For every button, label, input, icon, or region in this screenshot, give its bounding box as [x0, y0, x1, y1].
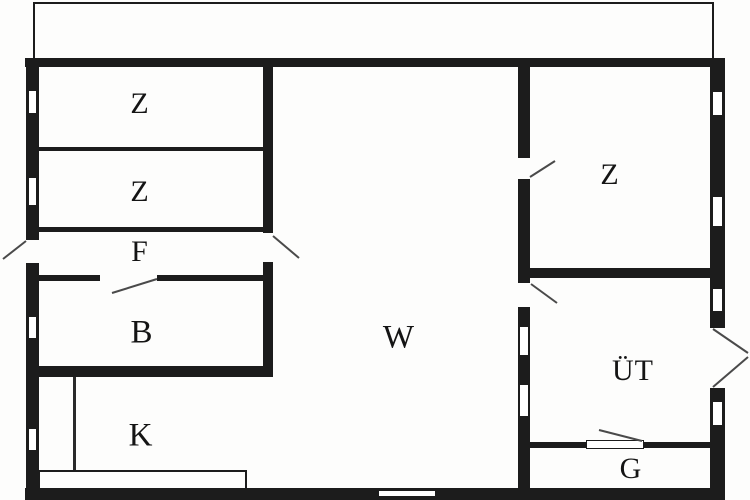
b-door-swing-line	[112, 279, 157, 293]
room-label-w: W	[383, 322, 415, 355]
wall-w-right-vertical	[518, 58, 530, 500]
floor-plan: Z Z F B K W Z ÜT G	[0, 0, 750, 500]
wall-g-top-left-segment	[530, 442, 588, 448]
window-left-1	[27, 89, 38, 115]
ut-door-opening	[518, 283, 530, 307]
room-label-ut: ÜT	[612, 356, 654, 386]
wall-f-b-left-segment	[39, 275, 100, 281]
wall-exterior-top	[25, 58, 725, 67]
wall-g-top-right-segment	[642, 442, 710, 448]
window-w-ut-2	[518, 383, 530, 418]
window-left-2	[27, 176, 38, 207]
window-right-3	[711, 287, 724, 313]
wall-z1-z2	[39, 147, 263, 151]
room-label-z1: Z	[130, 89, 149, 119]
room-label-f: F	[131, 237, 149, 267]
room-label-z2: Z	[130, 177, 149, 207]
room-label-k: K	[129, 420, 154, 453]
ut-door-swing-line	[531, 284, 557, 303]
f-to-w-door-opening	[263, 233, 273, 262]
wall-left-rooms-vertical	[263, 58, 273, 377]
window-w-ut-1	[518, 325, 530, 357]
wall-b-bottom	[39, 366, 273, 377]
kitchen-divider-line	[73, 377, 76, 470]
g-door-threshold	[586, 440, 644, 449]
window-left-3	[27, 315, 38, 340]
entrance-door-swing-line	[3, 241, 26, 259]
entrance-door-opening	[26, 240, 39, 263]
terrace-outline	[33, 2, 714, 60]
z3-door-swing-line	[530, 161, 555, 177]
window-right-2	[711, 195, 724, 228]
window-left-4	[27, 427, 38, 452]
wall-z2-f	[39, 227, 263, 232]
door-swing-overlay	[0, 0, 750, 500]
kitchen-counter	[38, 470, 247, 490]
wall-exterior-right	[710, 58, 725, 500]
f-to-w-door-swing-line	[273, 236, 299, 258]
window-bottom	[377, 489, 437, 498]
wall-z3-ut	[518, 268, 725, 278]
window-right-1	[711, 90, 724, 117]
room-label-g: G	[620, 454, 643, 484]
window-right-4	[711, 400, 724, 427]
room-label-b: B	[130, 317, 153, 350]
z3-door-opening	[518, 158, 530, 179]
ut-exterior-door-opening	[710, 328, 725, 388]
room-label-z3: Z	[600, 160, 619, 190]
wall-f-b-right-segment	[157, 275, 273, 281]
